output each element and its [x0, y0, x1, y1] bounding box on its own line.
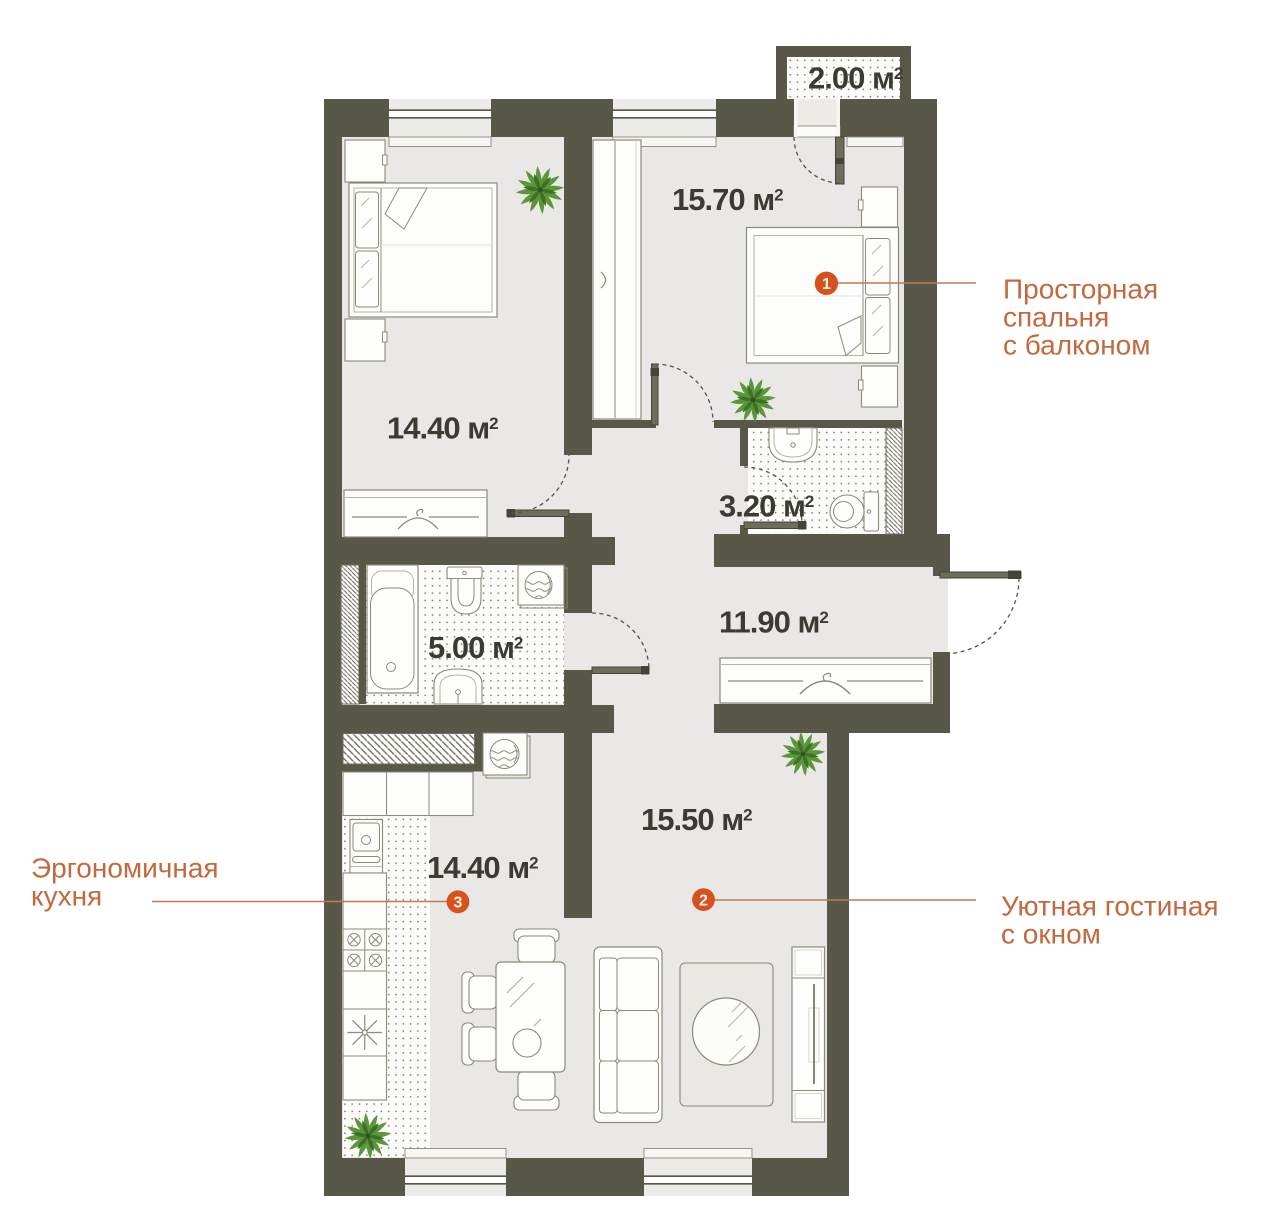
- svg-text:1: 1: [822, 276, 831, 293]
- svg-text:11.90 м2: 11.90 м2: [719, 605, 829, 640]
- svg-text:15.70 м2: 15.70 м2: [672, 182, 784, 217]
- svg-text:2.00 м2: 2.00 м2: [808, 61, 903, 96]
- svg-text:15.50 м2: 15.50 м2: [641, 802, 753, 837]
- svg-text:2: 2: [699, 892, 708, 909]
- svg-text:3.20 м2: 3.20 м2: [719, 489, 814, 524]
- svg-text:14.40 м2: 14.40 м2: [427, 850, 539, 885]
- svg-text:5.00 м2: 5.00 м2: [428, 630, 523, 665]
- svg-text:14.40 м2: 14.40 м2: [387, 411, 499, 446]
- svg-text:3: 3: [454, 895, 463, 912]
